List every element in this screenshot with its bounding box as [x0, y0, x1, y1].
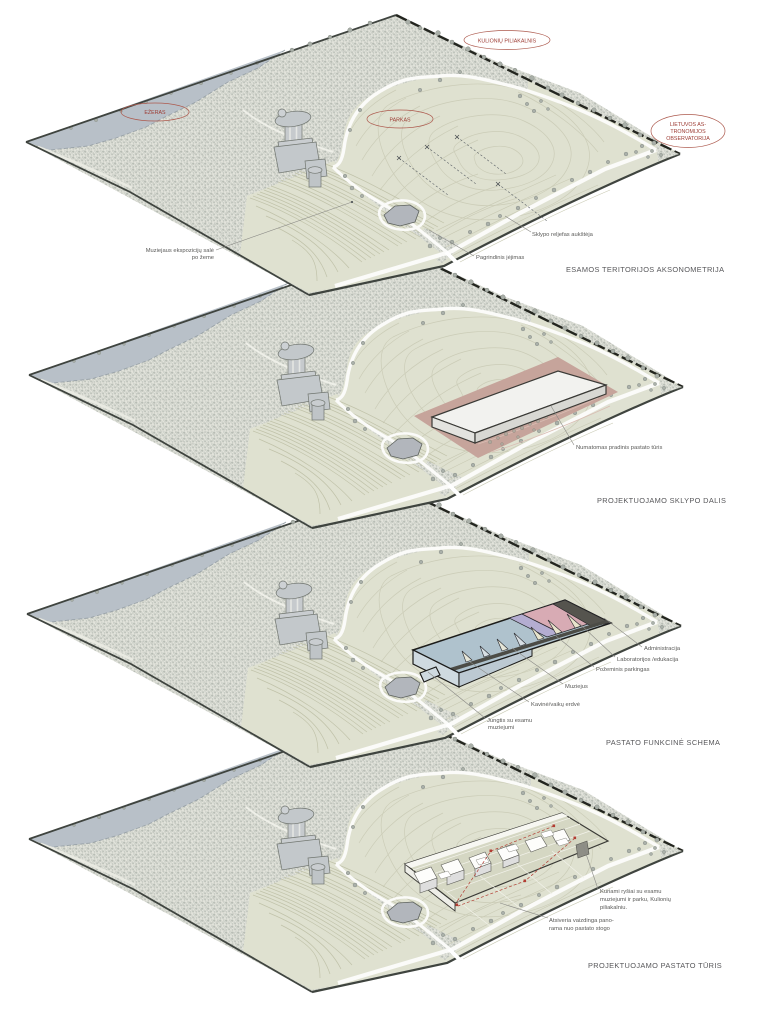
svg-text:EŽERAS: EŽERAS: [144, 108, 166, 116]
svg-text:Muziejus: Muziejus: [565, 684, 588, 690]
svg-text:muziejumi: muziejumi: [488, 725, 514, 731]
svg-text:PROJEKTUOJAMO SKLYPO DALIS: PROJEKTUOJAMO SKLYPO DALIS: [597, 496, 726, 505]
svg-text:PASTATO FUNKCINĖ SCHEMA: PASTATO FUNKCINĖ SCHEMA: [606, 738, 720, 747]
svg-text:Kavinė/vaikų erdvė: Kavinė/vaikų erdvė: [531, 702, 580, 708]
svg-text:po žeme: po žeme: [192, 255, 214, 261]
svg-text:Numatomas pradinis pastato tūr: Numatomas pradinis pastato tūris: [576, 445, 662, 451]
svg-text:Pagrindinis įėjimas: Pagrindinis įėjimas: [476, 255, 524, 261]
svg-text:ESAMOS TERITORIJOS AKSONOMETRI: ESAMOS TERITORIJOS AKSONOMETRIJA: [566, 265, 724, 274]
svg-text:Laboratorijos /edukacija: Laboratorijos /edukacija: [617, 657, 679, 663]
svg-text:LIETUVOS AS-: LIETUVOS AS-: [670, 122, 706, 128]
svg-text:Sklypo reljefas aukštėja: Sklypo reljefas aukštėja: [532, 232, 594, 238]
svg-text:Administracija: Administracija: [644, 646, 681, 652]
svg-text:OBSERVATORIJA: OBSERVATORIJA: [666, 136, 710, 142]
svg-text:PROJEKTUOJAMO PASTATO TŪRIS: PROJEKTUOJAMO PASTATO TŪRIS: [588, 961, 722, 970]
svg-text:rama nuo pastato stogo: rama nuo pastato stogo: [549, 926, 610, 932]
svg-text:piliakalniu.: piliakalniu.: [600, 905, 627, 911]
svg-text:KULIONIŲ PILIAKALNIS: KULIONIŲ PILIAKALNIS: [478, 39, 537, 45]
svg-text:Jungtis su esamu: Jungtis su esamu: [487, 718, 532, 724]
svg-text:PARKAS: PARKAS: [389, 118, 411, 124]
svg-text:TRONOMIJOS: TRONOMIJOS: [670, 129, 706, 135]
svg-text:muziejumi ir parku, Kulionių: muziejumi ir parku, Kulionių: [600, 897, 671, 903]
svg-text:Muziejaus ekspozicijų salė: Muziejaus ekspozicijų salė: [146, 248, 214, 254]
svg-text:Požeminis parkingas: Požeminis parkingas: [596, 667, 650, 673]
svg-text:Kuriami ryšiai su esamu: Kuriami ryšiai su esamu: [600, 889, 662, 895]
svg-text:Atsiveria vaizdinga pano-: Atsiveria vaizdinga pano-: [549, 918, 614, 924]
